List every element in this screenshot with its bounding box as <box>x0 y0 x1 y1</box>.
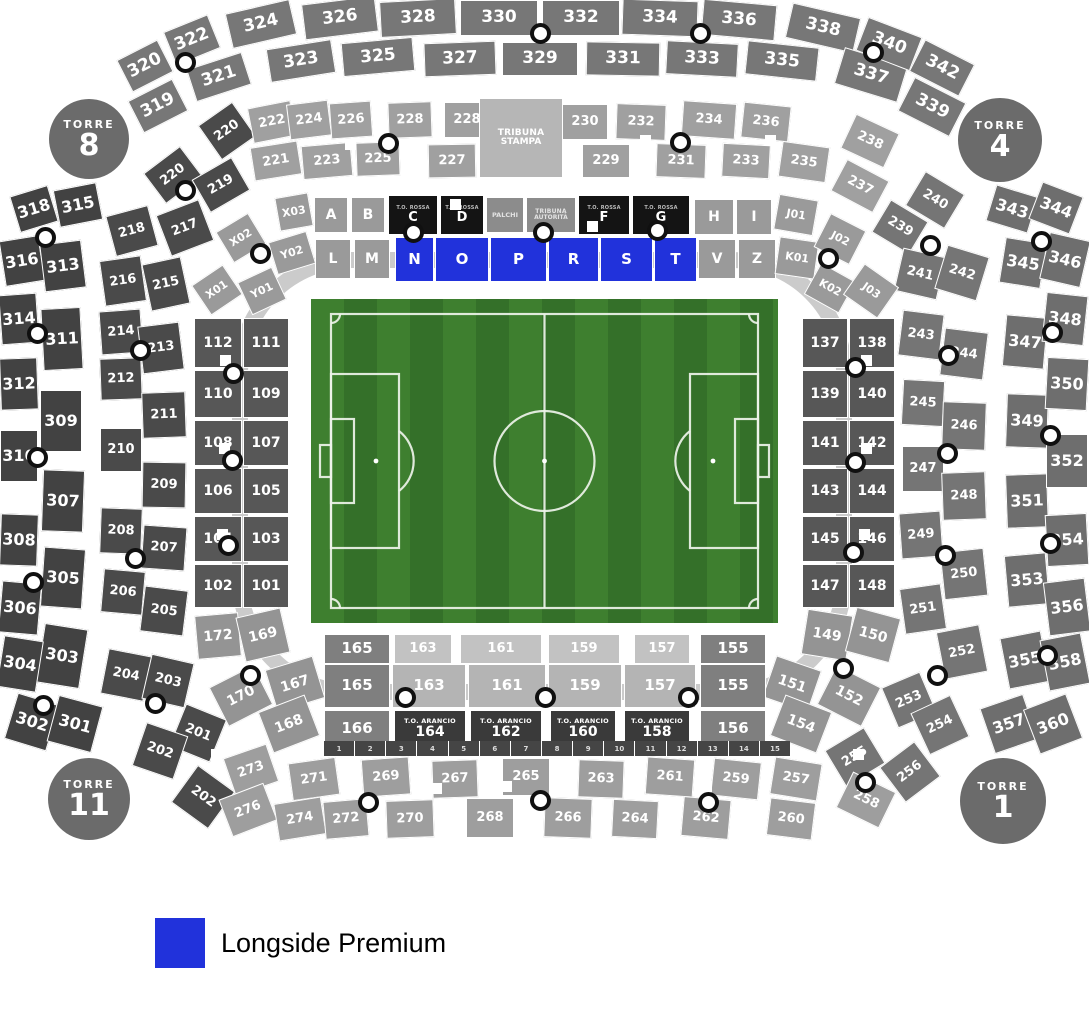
torre-4-label: TORRE4 <box>958 98 1042 182</box>
entrance-marker <box>670 132 691 153</box>
section-148[interactable]: 148 <box>849 564 895 608</box>
section-s[interactable]: S <box>600 237 653 282</box>
section-235[interactable]: 235 <box>778 141 831 183</box>
row-number: 11 <box>635 741 665 756</box>
section-206[interactable]: 206 <box>100 568 146 615</box>
entrance-marker <box>1040 533 1061 554</box>
entrance-marker <box>843 542 864 563</box>
section-343[interactable]: 343 <box>985 184 1038 233</box>
row-number: 5 <box>449 741 479 756</box>
section-263[interactable]: 263 <box>577 759 624 799</box>
entrance-marker <box>145 693 166 714</box>
section-230[interactable]: 230 <box>562 104 608 140</box>
gate-marker <box>640 135 651 146</box>
section-107[interactable]: 107 <box>243 420 289 466</box>
entrance-marker <box>818 248 839 269</box>
entrance-marker <box>378 133 399 154</box>
entrance-marker <box>395 687 416 708</box>
row-number: 8 <box>542 741 572 756</box>
section-350[interactable]: 350 <box>1045 357 1089 411</box>
entrance-marker <box>845 357 866 378</box>
gate-marker <box>853 749 864 760</box>
section-228-a[interactable]: 228 <box>387 101 432 139</box>
section-101[interactable]: 101 <box>243 564 289 608</box>
gate-marker <box>765 135 776 146</box>
section-163-upper[interactable]: 163 <box>394 634 452 664</box>
entrance-marker <box>833 658 854 679</box>
section-t[interactable]: T <box>654 237 697 282</box>
entrance-marker <box>27 323 48 344</box>
section-172[interactable]: 172 <box>194 612 242 660</box>
entrance-marker <box>1042 322 1063 343</box>
entrance-marker <box>533 222 554 243</box>
section-268[interactable]: 268 <box>466 798 514 838</box>
section-i[interactable]: I <box>736 199 772 235</box>
section-106[interactable]: 106 <box>194 468 242 514</box>
section-347[interactable]: 347 <box>1002 314 1048 369</box>
section-215[interactable]: 215 <box>141 256 190 311</box>
section-111[interactable]: 111 <box>243 318 289 368</box>
section-141[interactable]: 141 <box>802 420 848 466</box>
row-number: 3 <box>386 741 416 756</box>
section-f[interactable]: T.O. ROSSAF <box>578 195 630 235</box>
section-155-upper[interactable]: 155 <box>700 634 766 664</box>
entrance-marker <box>920 235 941 256</box>
section-266[interactable]: 266 <box>543 797 592 839</box>
section-145[interactable]: 145 <box>802 516 848 562</box>
section-259[interactable]: 259 <box>710 758 762 801</box>
pitch-lines <box>311 299 778 623</box>
section-305[interactable]: 305 <box>40 547 86 610</box>
entrance-marker <box>240 665 261 686</box>
row-number: 6 <box>480 741 510 756</box>
football-pitch <box>311 299 778 623</box>
section-211[interactable]: 211 <box>141 391 187 439</box>
section-102[interactable]: 102 <box>194 564 242 608</box>
entrance-marker <box>175 52 196 73</box>
section-315[interactable]: 315 <box>53 182 103 228</box>
entrance-marker <box>358 792 379 813</box>
section-334[interactable]: 334 <box>621 0 698 37</box>
section-z[interactable]: Z <box>738 239 776 279</box>
section-351[interactable]: 351 <box>1005 473 1049 528</box>
entrance-marker <box>130 340 151 361</box>
entrance-marker <box>927 665 948 686</box>
section-147[interactable]: 147 <box>802 564 848 608</box>
section-308[interactable]: 308 <box>0 513 39 566</box>
section-321[interactable]: 321 <box>186 52 252 102</box>
section-143[interactable]: 143 <box>802 468 848 514</box>
row-number: 9 <box>573 741 603 756</box>
entrance-marker <box>530 23 551 44</box>
section-149[interactable]: 149 <box>801 609 854 662</box>
entrance-marker <box>535 687 556 708</box>
section-n[interactable]: N <box>395 237 434 282</box>
gate-marker <box>501 781 512 792</box>
row-number: 10 <box>604 741 634 756</box>
legend-label: Longside Premium <box>221 928 446 959</box>
entrance-marker <box>223 363 244 384</box>
row-number: 13 <box>698 741 728 756</box>
entrance-marker <box>530 790 551 811</box>
section-229[interactable]: 229 <box>582 144 630 178</box>
section-109[interactable]: 109 <box>243 370 289 418</box>
row-number: 4 <box>417 741 447 756</box>
section-palchi[interactable]: PALCHI <box>486 197 524 233</box>
section-tribuna-stampa[interactable]: TRIBUNASTAMPA <box>479 98 563 178</box>
entrance-marker <box>27 447 48 468</box>
section-330[interactable]: 330 <box>460 0 538 36</box>
section-264[interactable]: 264 <box>611 799 659 839</box>
section-144[interactable]: 144 <box>849 468 895 514</box>
section-139[interactable]: 139 <box>802 370 848 418</box>
gate-marker <box>345 139 356 150</box>
section-209[interactable]: 209 <box>142 462 187 509</box>
section-242[interactable]: 242 <box>934 245 990 302</box>
gate-marker <box>861 443 872 454</box>
section-307[interactable]: 307 <box>41 469 85 532</box>
section-326[interactable]: 326 <box>301 0 379 40</box>
row-number: 7 <box>511 741 541 756</box>
section-105[interactable]: 105 <box>243 468 289 514</box>
section-353[interactable]: 353 <box>1004 552 1050 607</box>
section-221[interactable]: 221 <box>250 140 303 181</box>
section-224[interactable]: 224 <box>286 100 332 141</box>
entrance-marker <box>863 42 884 63</box>
section-137[interactable]: 137 <box>802 318 848 368</box>
section-216[interactable]: 216 <box>99 255 147 306</box>
section-159-upper[interactable]: 159 <box>548 634 620 664</box>
section-360[interactable]: 360 <box>1023 693 1083 754</box>
section-226[interactable]: 226 <box>329 101 373 140</box>
row-number: 2 <box>355 741 385 756</box>
section-323[interactable]: 323 <box>266 39 337 83</box>
row-number: 1 <box>324 741 354 756</box>
entrance-marker <box>698 792 719 813</box>
gate-marker <box>859 529 870 540</box>
entrance-marker <box>937 443 958 464</box>
section-j03[interactable]: J03 <box>843 263 899 318</box>
row-number: 12 <box>667 741 697 756</box>
section-251[interactable]: 251 <box>899 583 947 634</box>
section-234[interactable]: 234 <box>681 100 737 140</box>
section-j01[interactable]: J01 <box>773 194 819 236</box>
section-l[interactable]: L <box>315 239 351 279</box>
section-o[interactable]: O <box>435 237 489 282</box>
legend-swatch-longside-premium <box>155 918 205 968</box>
section-318[interactable]: 318 <box>9 185 58 233</box>
section-327[interactable]: 327 <box>423 41 496 77</box>
torre-8-label: TORRE8 <box>49 99 129 179</box>
section-m[interactable]: M <box>354 239 390 279</box>
section-x01[interactable]: X01 <box>191 264 243 315</box>
torre-1-label: TORRE1 <box>960 758 1046 844</box>
gate-marker <box>587 221 598 232</box>
section-v[interactable]: V <box>698 239 736 279</box>
gate-marker <box>701 781 712 792</box>
section-103[interactable]: 103 <box>243 516 289 562</box>
section-205[interactable]: 205 <box>139 585 188 636</box>
section-165[interactable]: 165 <box>324 664 390 708</box>
section-324[interactable]: 324 <box>225 0 297 49</box>
section-233[interactable]: 233 <box>721 143 771 179</box>
entrance-marker <box>1040 425 1061 446</box>
entrance-marker <box>33 695 54 716</box>
section-227[interactable]: 227 <box>428 144 477 179</box>
section-248[interactable]: 248 <box>941 471 987 521</box>
section-332[interactable]: 332 <box>542 0 620 36</box>
section-336[interactable]: 336 <box>701 0 778 41</box>
entrance-marker <box>125 548 146 569</box>
gate-marker <box>450 199 461 210</box>
section-245[interactable]: 245 <box>901 379 945 427</box>
section-311[interactable]: 311 <box>40 307 83 371</box>
entrance-marker <box>1031 231 1052 252</box>
section-261[interactable]: 261 <box>645 756 696 797</box>
entrance-marker <box>175 180 196 201</box>
section-210[interactable]: 210 <box>100 428 142 472</box>
section-157-upper[interactable]: 157 <box>634 634 690 664</box>
gate-marker <box>431 783 442 794</box>
section-270[interactable]: 270 <box>385 799 434 839</box>
entrance-marker <box>690 23 711 44</box>
row-number: 14 <box>729 741 759 756</box>
section-h[interactable]: H <box>694 199 734 235</box>
section-328[interactable]: 328 <box>379 0 457 38</box>
section-325[interactable]: 325 <box>341 37 416 77</box>
section-271[interactable]: 271 <box>288 757 341 801</box>
section-165-upper[interactable]: 165 <box>324 634 390 664</box>
entrance-marker <box>647 220 668 241</box>
section-217[interactable]: 217 <box>156 199 215 257</box>
entrance-marker <box>218 535 239 556</box>
section-257[interactable]: 257 <box>769 756 822 801</box>
entrance-marker <box>250 243 271 264</box>
section-112[interactable]: 112 <box>194 318 242 368</box>
entrance-marker <box>222 450 243 471</box>
section-212[interactable]: 212 <box>99 357 142 400</box>
entrance-marker <box>855 772 876 793</box>
section-150[interactable]: 150 <box>845 607 901 663</box>
row-number-strip: 123456789101112131415 <box>324 741 790 756</box>
section-161-upper[interactable]: 161 <box>460 634 542 664</box>
entrance-marker <box>403 222 424 243</box>
entrance-marker <box>23 572 44 593</box>
section-r[interactable]: R <box>548 237 599 282</box>
section-x03[interactable]: X03 <box>274 192 313 231</box>
section-329[interactable]: 329 <box>502 42 578 76</box>
section-155[interactable]: 155 <box>700 664 766 708</box>
section-356[interactable]: 356 <box>1043 578 1089 637</box>
section-312[interactable]: 312 <box>0 357 39 410</box>
section-b[interactable]: B <box>351 197 385 233</box>
entrance-marker <box>935 545 956 566</box>
legend: Longside Premium <box>155 918 446 968</box>
section-p[interactable]: P <box>490 237 547 282</box>
section-333[interactable]: 333 <box>665 40 739 78</box>
section-274[interactable]: 274 <box>273 796 326 841</box>
stadium-map: 123456789101112131415 Longside Premium 3… <box>0 0 1089 1032</box>
entrance-marker <box>845 452 866 473</box>
section-159[interactable]: 159 <box>548 664 622 708</box>
entrance-marker <box>35 227 56 248</box>
section-344[interactable]: 344 <box>1028 181 1083 234</box>
entrance-marker <box>938 345 959 366</box>
section-304[interactable]: 304 <box>0 635 44 693</box>
section-331[interactable]: 331 <box>586 41 661 76</box>
entrance-marker <box>1037 645 1058 666</box>
section-k01[interactable]: K01 <box>775 236 820 279</box>
section-335[interactable]: 335 <box>744 40 819 81</box>
section-d[interactable]: T.O. ROSSAD <box>440 195 484 235</box>
section-161[interactable]: 161 <box>468 664 546 708</box>
row-number: 15 <box>760 741 790 756</box>
entrance-marker <box>678 687 699 708</box>
section-207[interactable]: 207 <box>141 525 188 572</box>
gate-marker <box>211 749 222 760</box>
section-a[interactable]: A <box>314 197 348 233</box>
torre-11-label: TORRE11 <box>48 758 130 840</box>
section-303[interactable]: 303 <box>36 623 89 689</box>
section-218[interactable]: 218 <box>105 205 158 257</box>
section-260[interactable]: 260 <box>766 797 816 840</box>
section-309[interactable]: 309 <box>40 390 82 452</box>
